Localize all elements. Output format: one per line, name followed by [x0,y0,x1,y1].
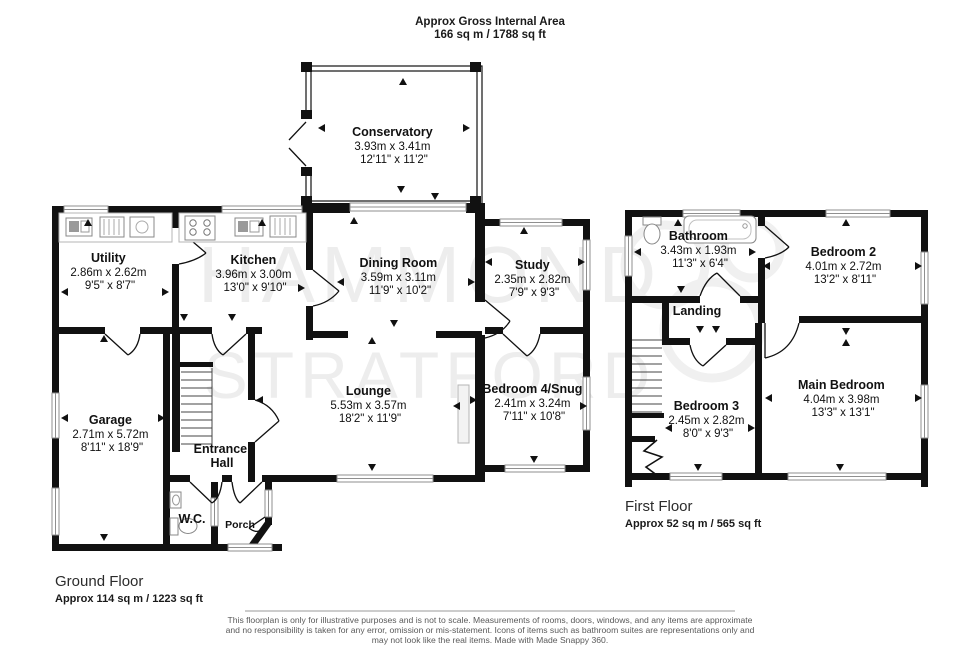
gross-area-value: 166 sq m / 1788 sq ft [434,29,546,41]
stove-icon [185,216,215,240]
first-floor-label: First Floor [625,498,693,515]
room-label-utility: Utility 2.86m x 2.62m 9'5" x 8'7" [70,251,149,292]
room-label-bedroom3: Bedroom 3 2.45m x 2.82m 8'0" x 9'3" [668,399,747,440]
rack-icon [270,216,296,237]
room-label-main-bedroom: Main Bedroom 4.04m x 3.98m 13'3" x 13'1" [798,378,888,419]
room-label-landing: Landing [673,304,722,318]
ground-floor-label: Ground Floor [55,573,143,590]
room-label-bedroom2: Bedroom 2 4.01m x 2.72m 13'2" x 8'11" [805,245,884,286]
room-label-wc: W.C. [178,512,205,526]
toilet-icon [170,518,178,535]
room-label-bedroom4-snug: Bedroom 4/Snug 2.41m x 3.24m 7'11" x 10'… [482,382,585,423]
disclaimer-line2: and no responsibility is taken for any e… [226,625,755,635]
room-label-garage: Garage 2.71m x 5.72m 8'11" x 18'9" [72,413,151,454]
room-label-dining-room: Dining Room 3.59m x 3.11m 11'9" x 10'2" [360,256,441,297]
lounge-fireplace [458,385,469,443]
footer: This floorplan is only for illustrative … [226,611,755,645]
utility-counter [59,213,172,242]
room-label-porch: Porch [225,519,255,531]
room-label-bathroom: Bathroom 3.43m x 1.93m 11'3" x 6'4" [660,229,739,270]
room-label-conservatory: Conservatory 3.93m x 3.41m 12'11" x 11'2… [352,125,436,166]
ground-floor-plan: Conservatory 3.93m x 3.41m 12'11" x 11'2… [52,62,590,605]
kitchen-counter [179,213,306,242]
header: Approx Gross Internal Area 166 sq m / 17… [415,16,565,41]
disclaimer-line3: may not look like the real items. Made w… [372,635,608,645]
first-floor-area: Approx 52 sq m / 565 sq ft [625,518,762,530]
washer-icon [130,217,154,237]
gross-area-title: Approx Gross Internal Area [415,16,565,28]
floorplan-page: HAMMOND STRATFORD Approx Gross Internal … [0,0,980,656]
bifold-door-icon [644,440,662,476]
disclaimer-line1: This floorplan is only for illustrative … [228,615,753,625]
floorplan-svg: HAMMOND STRATFORD Approx Gross Internal … [0,0,980,656]
ground-floor-area: Approx 114 sq m / 1223 sq ft [55,593,203,605]
room-label-entrance-hall: Entrance Hall [194,442,251,470]
